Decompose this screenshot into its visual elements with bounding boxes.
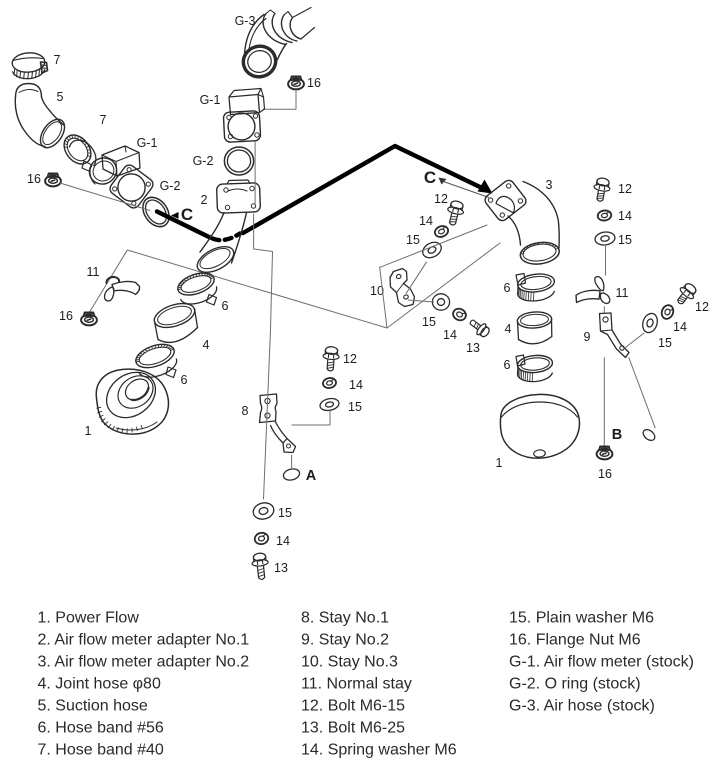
svg-text:15. Plain washer M6: 15. Plain washer M6: [509, 610, 654, 627]
svg-text:14: 14: [443, 328, 457, 342]
svg-text:14: 14: [419, 214, 433, 228]
svg-text:6: 6: [222, 299, 229, 313]
svg-text:16: 16: [27, 172, 41, 186]
svg-text:14. Spring washer M6: 14. Spring washer M6: [301, 742, 457, 759]
svg-text:11: 11: [87, 265, 100, 279]
svg-text:G-1: G-1: [137, 136, 158, 150]
svg-text:2: 2: [201, 193, 208, 207]
svg-text:G-1. Air flow meter (stock): G-1. Air flow meter (stock): [509, 654, 694, 671]
svg-text:8. Stay No.1: 8. Stay No.1: [301, 610, 389, 627]
svg-text:5: 5: [57, 90, 64, 104]
svg-text:12. Bolt M6-15: 12. Bolt M6-15: [301, 698, 405, 715]
svg-text:12: 12: [618, 182, 632, 196]
svg-text:16: 16: [598, 467, 612, 481]
svg-text:C: C: [424, 168, 436, 187]
svg-text:G-2: G-2: [193, 154, 214, 168]
svg-text:15: 15: [658, 336, 672, 350]
svg-text:1: 1: [85, 424, 92, 438]
svg-text:14: 14: [618, 209, 632, 223]
svg-text:4: 4: [505, 322, 512, 336]
svg-text:15: 15: [406, 233, 420, 247]
svg-text:15: 15: [278, 506, 292, 520]
svg-text:G-2: G-2: [160, 179, 181, 193]
svg-text:16. Flange Nut M6: 16. Flange Nut M6: [509, 632, 641, 649]
svg-text:B: B: [612, 427, 622, 443]
svg-text:1: 1: [496, 456, 503, 470]
svg-text:16: 16: [307, 76, 321, 90]
svg-text:9. Stay No.2: 9. Stay No.2: [301, 632, 389, 649]
svg-text:G-3. Air hose (stock): G-3. Air hose (stock): [509, 698, 655, 715]
svg-text:6: 6: [504, 281, 511, 295]
svg-text:G-2. O ring (stock): G-2. O ring (stock): [509, 676, 641, 693]
svg-text:15: 15: [348, 400, 362, 414]
svg-text:3: 3: [546, 178, 553, 192]
svg-text:6: 6: [181, 373, 188, 387]
svg-text:14: 14: [276, 534, 290, 548]
svg-text:7: 7: [100, 113, 107, 127]
svg-text:14: 14: [673, 320, 687, 334]
svg-text:9: 9: [584, 330, 591, 344]
svg-text:A: A: [306, 468, 317, 484]
svg-text:6. Hose band #56: 6. Hose band #56: [38, 720, 164, 737]
svg-text:11: 11: [616, 286, 629, 300]
svg-text:16: 16: [59, 309, 73, 323]
svg-text:5. Suction hose: 5. Suction hose: [38, 698, 148, 715]
svg-text:7: 7: [54, 53, 61, 67]
svg-text:12: 12: [434, 192, 448, 206]
svg-text:13: 13: [274, 561, 288, 575]
svg-text:7. Hose band #40: 7. Hose band #40: [38, 742, 164, 759]
svg-text:6: 6: [504, 358, 511, 372]
svg-text:2. Air flow meter adapter No.1: 2. Air flow meter adapter No.1: [38, 632, 250, 649]
svg-text:10. Stay No.3: 10. Stay No.3: [301, 654, 398, 671]
svg-text:13. Bolt M6-25: 13. Bolt M6-25: [301, 720, 405, 737]
svg-text:1. Power Flow: 1. Power Flow: [38, 610, 140, 627]
svg-text:G-1: G-1: [200, 93, 221, 107]
svg-text:4: 4: [203, 338, 210, 352]
svg-text:15: 15: [422, 315, 436, 329]
svg-text:8: 8: [242, 404, 249, 418]
svg-text:12: 12: [695, 300, 709, 314]
svg-text:3. Air flow meter adapter No.2: 3. Air flow meter adapter No.2: [38, 654, 250, 671]
svg-text:4. Joint hose φ80: 4. Joint hose φ80: [38, 676, 161, 693]
svg-text:14: 14: [349, 378, 363, 392]
svg-text:11. Normal stay: 11. Normal stay: [301, 676, 412, 693]
svg-text:13: 13: [466, 341, 480, 355]
svg-text:G-3: G-3: [235, 14, 256, 28]
svg-text:C: C: [181, 205, 193, 224]
svg-text:15: 15: [618, 233, 632, 247]
svg-text:12: 12: [343, 352, 357, 366]
